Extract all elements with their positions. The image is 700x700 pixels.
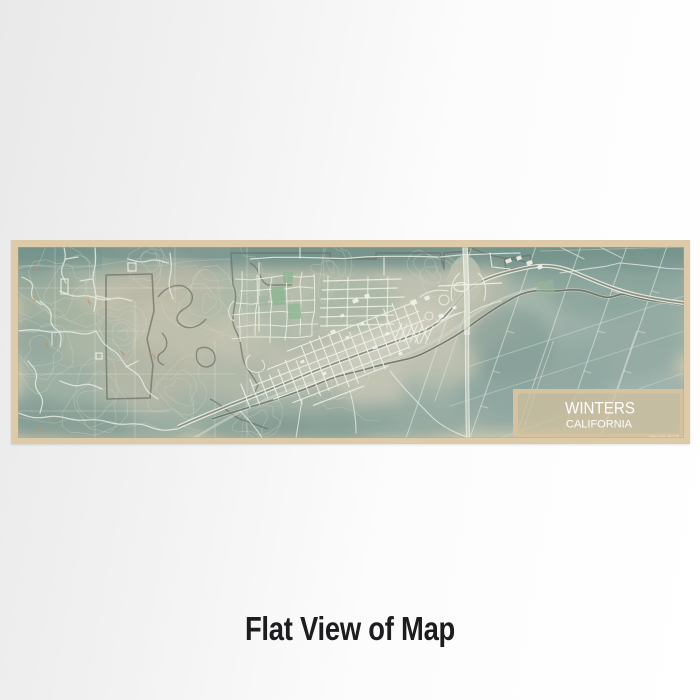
svg-text:WINTERS: WINTERS (565, 398, 635, 417)
svg-text:CALIFORNIA: CALIFORNIA (566, 418, 633, 430)
